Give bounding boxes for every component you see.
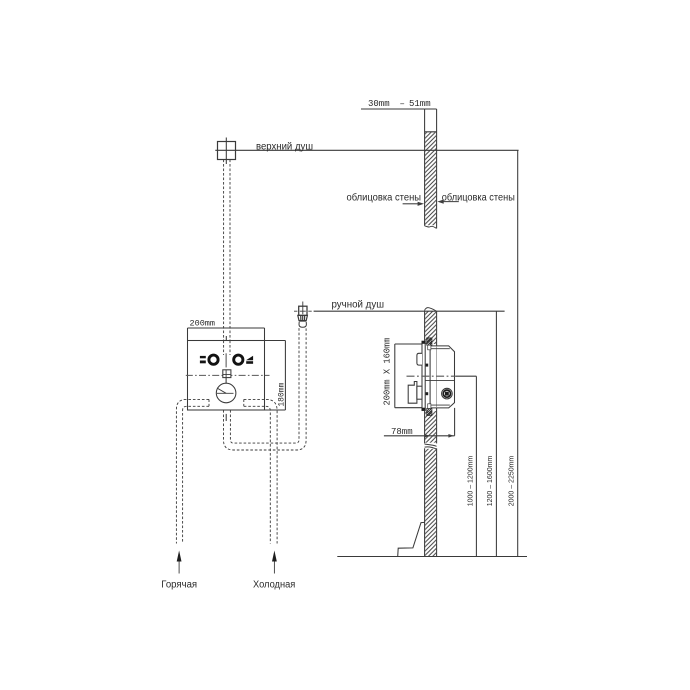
svg-text:–: – <box>400 99 405 109</box>
svg-text:200mm: 200mm <box>190 319 216 329</box>
svg-text:2000 – 2250mm: 2000 – 2250mm <box>507 456 516 507</box>
svg-text:51mm: 51mm <box>409 99 431 109</box>
svg-text:1200 – 1600mm: 1200 – 1600mm <box>485 456 494 507</box>
svg-text:Горячая: Горячая <box>161 580 197 591</box>
svg-text:верхний душ: верхний душ <box>256 141 313 152</box>
svg-text:200mm X 160mm: 200mm X 160mm <box>383 338 393 406</box>
svg-text:180mm: 180mm <box>277 382 286 406</box>
svg-text:ручной душ: ручной душ <box>332 300 385 311</box>
svg-text:облицовка стены: облицовка стены <box>347 192 422 203</box>
svg-text:Холодная: Холодная <box>253 580 295 591</box>
svg-text:1000 – 1200mm: 1000 – 1200mm <box>465 456 474 507</box>
svg-text:30mm: 30mm <box>368 99 390 109</box>
